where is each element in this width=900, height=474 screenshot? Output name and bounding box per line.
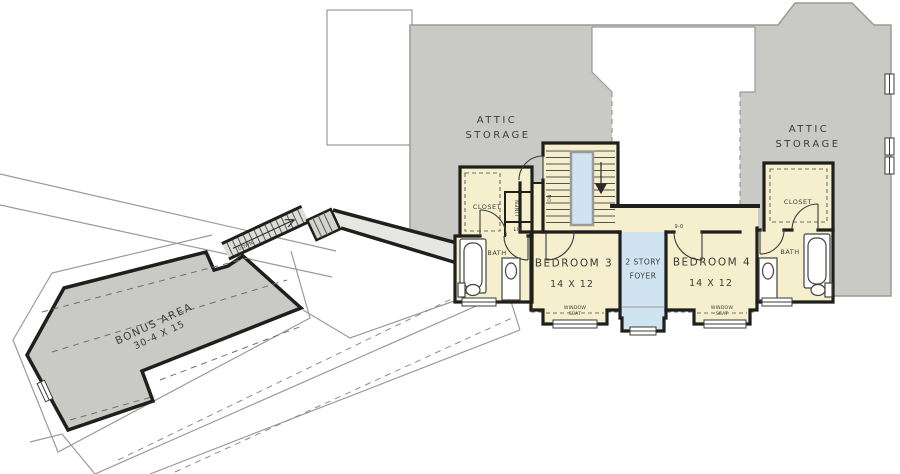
bedroom3-dims: 14 X 12 bbox=[550, 279, 594, 291]
bath-right-label: BATH bbox=[780, 248, 799, 256]
toilet-right-tank bbox=[825, 283, 832, 297]
closet-left-label: CLOSET bbox=[473, 203, 501, 211]
window-seat-left-label-1: WINDOW bbox=[564, 306, 586, 312]
closet-right-label: CLOSET bbox=[784, 198, 812, 206]
toilet-left-bowl bbox=[466, 285, 480, 296]
stairs-down-label: DN bbox=[548, 194, 554, 201]
upper-roof-rectangle bbox=[327, 10, 412, 145]
foyer-label-1: 2 STORY bbox=[625, 257, 660, 266]
bedroom4-dims: 14 X 12 bbox=[689, 278, 733, 290]
bonus-stairs bbox=[222, 206, 309, 259]
lin-closet-label: LIN bbox=[514, 227, 523, 233]
attic-storage-left-label-1: ATTIC bbox=[477, 115, 518, 128]
attic-storage-left-label-2: STORAGE bbox=[465, 130, 530, 143]
window-seat-right-label-2: SEAT bbox=[716, 312, 728, 318]
toilet-left-tank bbox=[458, 283, 465, 297]
toilet-right-bowl bbox=[811, 285, 825, 296]
sink-left bbox=[506, 263, 517, 279]
floor-plan: ATTIC STORAGE ATTIC STORAGE CLOSET CLOSE… bbox=[0, 0, 900, 474]
attic-storage-right-label-2: STORAGE bbox=[775, 139, 840, 152]
window-seat-left-label-2: SEAT bbox=[569, 312, 581, 318]
bonus-area-shape bbox=[27, 252, 301, 430]
bedroom3-name: BEDROOM 3 bbox=[535, 257, 613, 270]
door-dimension-9-0: 9-0 bbox=[674, 224, 683, 230]
window-seat-right-label-1: WINDOW bbox=[711, 306, 733, 312]
attic-storage-right-label-1: ATTIC bbox=[789, 124, 830, 137]
linen-closet-label: LINEN bbox=[515, 200, 521, 216]
foyer-label-2: FOYER bbox=[630, 271, 657, 280]
bedroom4-name: BEDROOM 4 bbox=[673, 256, 751, 269]
bath-left-label: BATH bbox=[487, 249, 506, 257]
floor-plan-drawing bbox=[0, 0, 900, 474]
stairwell-open-below bbox=[571, 152, 593, 225]
sink-right bbox=[763, 263, 774, 279]
